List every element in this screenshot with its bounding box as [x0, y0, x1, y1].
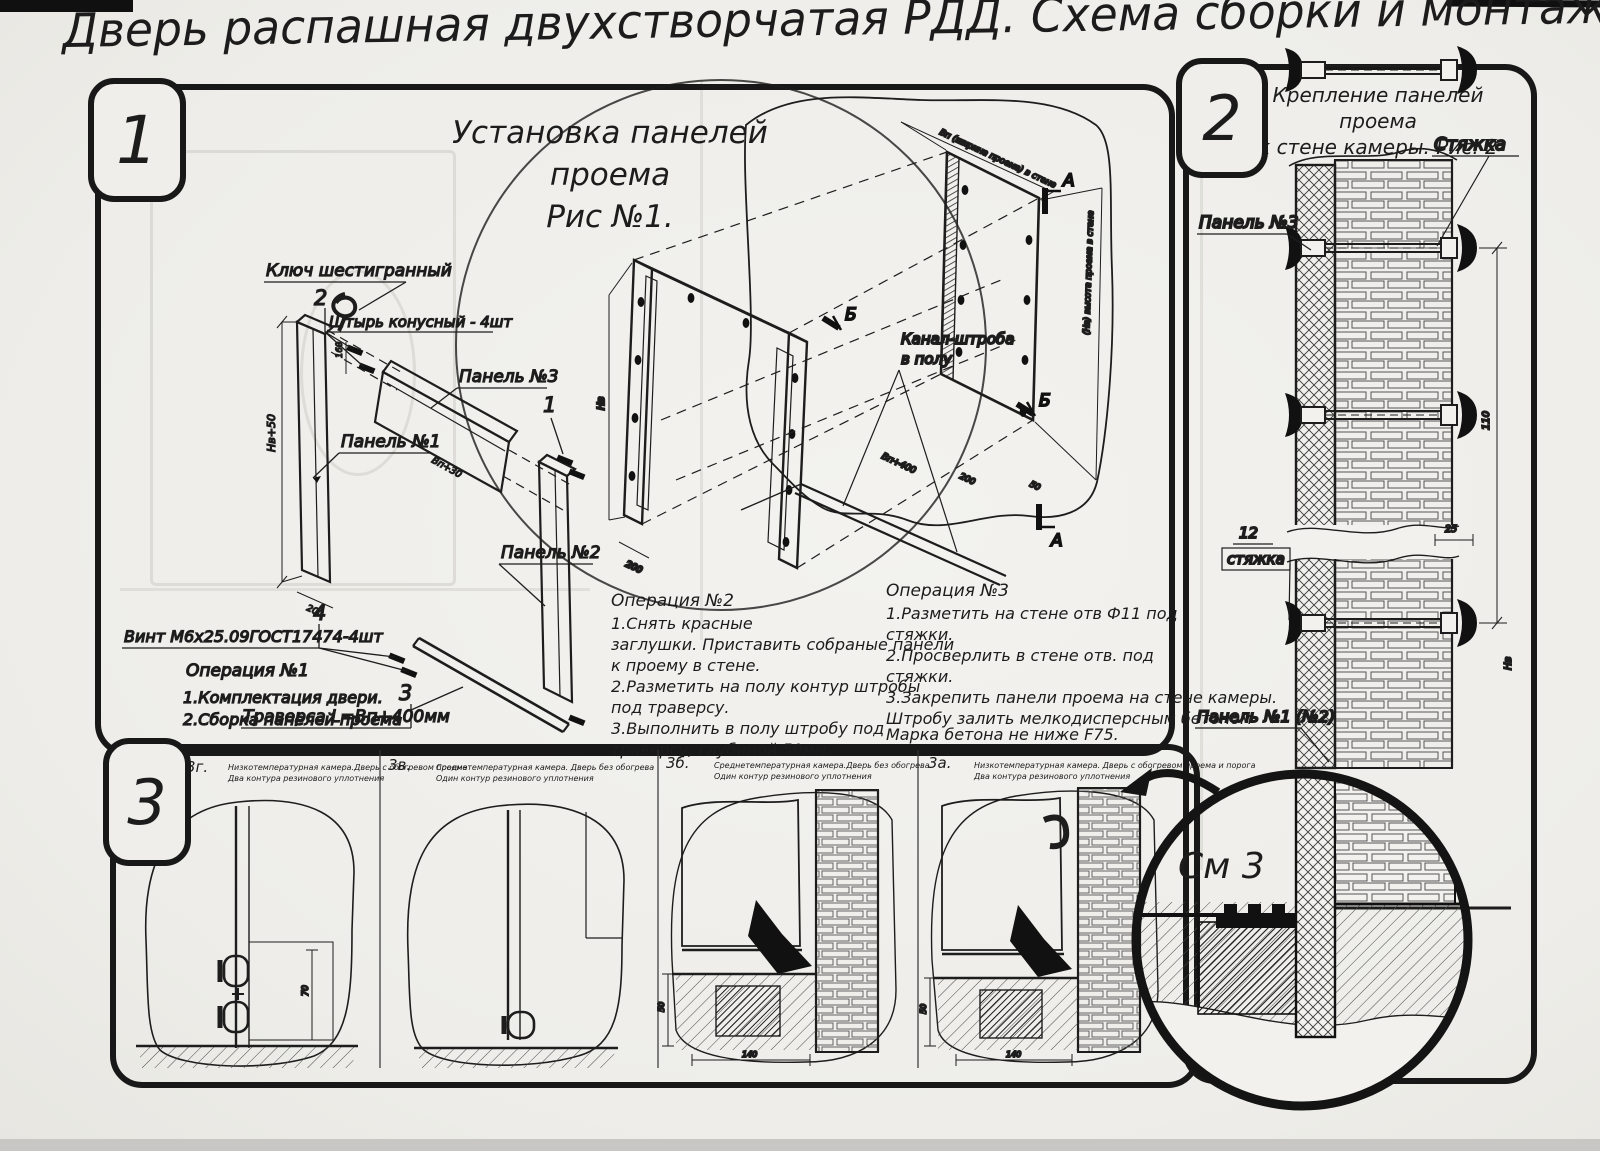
op2-line: к проему в стене.	[611, 656, 761, 675]
break-gap	[1289, 525, 1459, 559]
op1-line: Операция №1	[186, 661, 309, 681]
dim-frame-foot: 200	[624, 560, 644, 576]
fig2-badge-number: 2	[1202, 82, 1241, 155]
dim-channel: 200	[958, 472, 977, 488]
fig2-heading-line2: к стене камеры. Рис. 2	[1242, 134, 1514, 160]
detail-content: См 3	[1118, 752, 1508, 1148]
heater-loop	[1044, 818, 1066, 847]
panel1-label: Панель №1	[341, 432, 441, 452]
dim-foot50: 50	[1028, 480, 1042, 494]
channel-dark-fill	[1198, 922, 1296, 1014]
blob-outline	[408, 804, 624, 1065]
op3-line: 1.Разметить на стене отв Ф11 под	[886, 604, 1178, 623]
channel-trench	[980, 990, 1042, 1038]
dim-traverse-length: Вп+400	[880, 452, 918, 477]
op2-line: 3.Выполнить в полу штробу под	[611, 719, 884, 738]
cell-desc: Один контур резинового уплотнения	[436, 774, 594, 783]
fig3-badge-number: 3	[127, 766, 166, 839]
dim-140: 140	[742, 1050, 757, 1059]
wall-blob-outline	[745, 97, 1113, 525]
fig1-heading: Установка панелей проема Рис №1.	[420, 112, 800, 238]
item12-number: 12	[1239, 524, 1258, 542]
cell-desc: Два контура резинового уплотнения	[973, 772, 1130, 781]
door-leaf	[942, 798, 1062, 950]
op3-line: стяжки.	[886, 667, 953, 686]
op2-line: 2.Разметить на полу контур штробы	[611, 677, 920, 696]
fig2-heading: Крепление панелей проема к стене камеры.…	[1242, 82, 1514, 160]
frame-bolt-dots	[629, 293, 799, 547]
fig1-badge-number: 1	[116, 102, 158, 179]
item1-number: 1	[543, 393, 556, 417]
see3-detail-circle: См 3	[1118, 752, 1508, 1148]
dim-panel1-height: Нв+50	[265, 414, 278, 452]
fig2-badge: 2	[1176, 58, 1268, 178]
fig2-heading-line1: Крепление панелей проема	[1242, 82, 1514, 134]
heater-clamp	[1224, 904, 1237, 913]
door-leaf	[682, 800, 800, 946]
cell-id: 3а.	[928, 754, 952, 772]
dim-25: 25	[1445, 524, 1457, 535]
fig3-drawing: 3г. Низкотемпературная камера.Дверь с об…	[116, 750, 1182, 1070]
floor-hatch	[138, 1046, 356, 1068]
channel-trench	[716, 986, 780, 1036]
see3-arrow	[1140, 773, 1218, 792]
marker-b-bottom: Б	[1039, 391, 1051, 411]
detail-3v	[408, 804, 624, 1068]
dim-panel3-length: Вп+30	[430, 455, 464, 481]
heater-clamp	[1272, 904, 1285, 913]
detail-3b: 50 140	[657, 790, 896, 1066]
pin-label: Штырь конусный - 4шт	[329, 313, 514, 331]
fig1-heading-line2: Рис №1.	[420, 196, 800, 238]
panel2-groove	[555, 470, 560, 696]
marker-a-top: А	[1062, 171, 1075, 191]
cell-desc: Среднетемпературная камера.Дверь без обо…	[714, 761, 930, 770]
cell-desc: Низкотемпературная камера.Дверь с обогре…	[228, 763, 468, 772]
op1-line: 1.Комплектация двери.	[183, 688, 383, 707]
traverse-bracket	[748, 900, 812, 974]
cell-desc: Один контур резинового уплотнения	[714, 772, 872, 781]
fig1-heading-line1: Установка панелей проема	[420, 112, 800, 196]
dim-70: 70	[301, 985, 311, 996]
panel3-label: Панель №3	[459, 367, 559, 387]
dim-opening-height: (Нв) высота проема в стене	[1082, 211, 1096, 336]
traverse-end	[563, 724, 569, 732]
opening-bolt-dots	[956, 185, 1033, 417]
marker-a-bottom: А	[1050, 531, 1063, 551]
op2-line: Операция №2	[611, 591, 734, 611]
op3-line: 2.Просверлить в стене отв. под	[886, 646, 1154, 665]
heater-clamp	[1248, 904, 1261, 913]
item2-number: 2	[314, 286, 327, 310]
fig2-panel3-label: Панель №3	[1199, 213, 1299, 233]
dim-50: 50	[657, 1002, 666, 1012]
cell-desc: Среднетемпературная камера. Дверь без об…	[436, 763, 654, 772]
channel-label-line2: в полу	[901, 350, 953, 368]
exploded-panels-group	[297, 294, 586, 732]
see3-arrowhead-icon	[1120, 768, 1152, 796]
frame-top-rail	[634, 260, 807, 342]
cell-id: 3в.	[388, 756, 411, 774]
dim-140: 140	[1006, 1050, 1021, 1059]
fig1-badge: 1	[88, 78, 186, 202]
panel2-label: Панель №2	[501, 543, 601, 563]
assembly-axes	[327, 330, 571, 510]
dim-pin-gap: 160	[335, 342, 345, 358]
panel1-groove	[313, 329, 318, 577]
op2-line: под траверсу.	[611, 698, 729, 717]
item3-number: 3	[399, 681, 412, 705]
scanned-assembly-drawing: { "page": { "title": "Дверь распашная дв…	[0, 0, 1600, 1151]
panel-column	[1296, 752, 1335, 1037]
screw-label: Винт М6х25.09ГОСТ17474-4шт	[124, 627, 383, 646]
cell-desc: Два контура резинового уплотнения	[227, 774, 384, 783]
channel-label-line1: Канал-штроба	[901, 330, 1014, 348]
dim-110: 110	[1481, 411, 1492, 430]
see3-label: См 3	[1178, 846, 1265, 887]
fig3-headers: 3г. Низкотемпературная камера.Дверь с об…	[186, 754, 1256, 783]
panel12-label: Панель №1 (№2)	[1197, 707, 1335, 726]
dim-frame-height: Нв	[596, 396, 607, 410]
assembled-frame-group: Нв 200	[596, 260, 807, 576]
op3-line: стяжки.	[886, 625, 953, 644]
floor-hatch	[416, 1048, 616, 1068]
styazhka2-label: стяжка	[1227, 550, 1285, 568]
dim-50: 50	[919, 1004, 928, 1014]
rubber-seals	[220, 956, 248, 1032]
traverse-section	[1216, 913, 1296, 928]
floor-channel	[795, 493, 1000, 585]
exploded-labels: Ключ шестигранный 2 Штырь конусный - 4шт…	[122, 261, 601, 729]
traverse-end	[413, 638, 419, 646]
op3-line: Марка бетона не ниже F75.	[886, 725, 1119, 744]
dim-nv: Нв	[1503, 656, 1514, 670]
marker-b-top: Б	[845, 305, 857, 325]
brick-wall	[1335, 752, 1455, 904]
op3-line: Операция №3	[886, 581, 1009, 601]
brick-wall	[816, 790, 878, 1052]
cell-id: 3б.	[666, 754, 690, 772]
floor-channel	[801, 484, 1006, 576]
fig3-badge: 3	[103, 738, 191, 866]
hex-key-label: Ключ шестигранный	[266, 261, 452, 281]
op1-line: 2.Сборка панелей проема	[183, 710, 402, 729]
op2-line: 1.Снять красные	[611, 614, 753, 633]
